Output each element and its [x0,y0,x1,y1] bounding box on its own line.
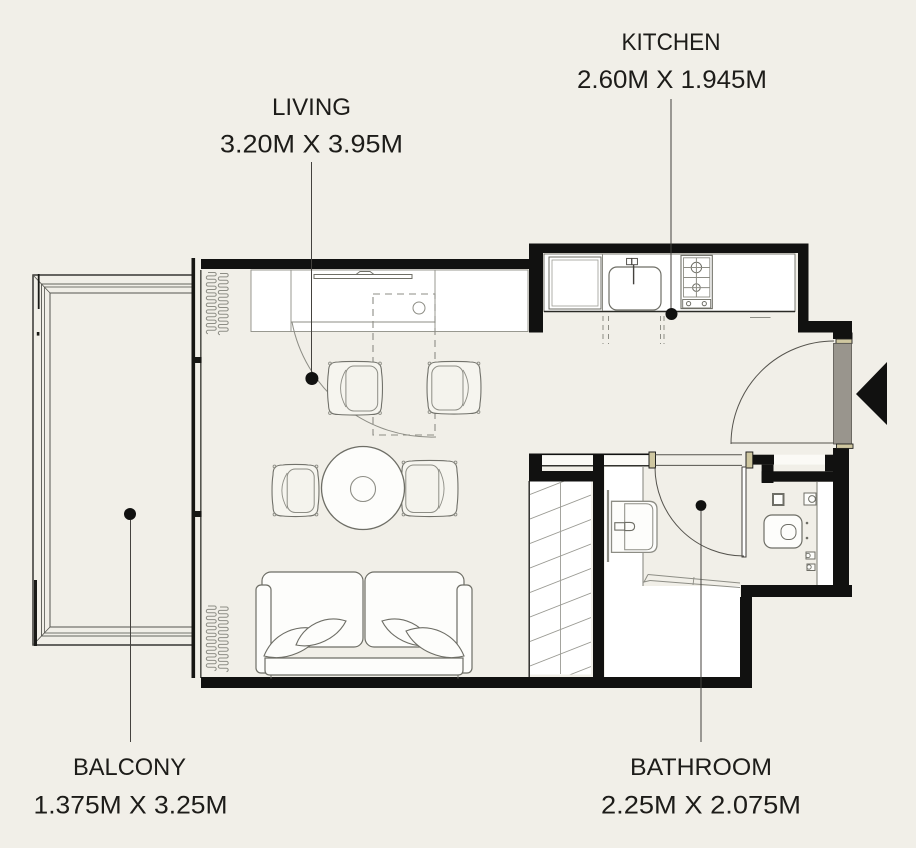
svg-text:1.375M X 3.25M: 1.375M X 3.25M [34,792,228,820]
svg-text:2.60M X 1.945M: 2.60M X 1.945M [577,66,767,94]
svg-text:BATHROOM: BATHROOM [630,754,772,781]
svg-text:BALCONY: BALCONY [73,754,186,781]
svg-text:3.20M X 3.95M: 3.20M X 3.95M [220,131,403,159]
svg-text:KITCHEN: KITCHEN [622,29,721,56]
svg-text:LIVING: LIVING [272,94,351,121]
svg-text:2.25M X 2.075M: 2.25M X 2.075M [601,792,801,820]
